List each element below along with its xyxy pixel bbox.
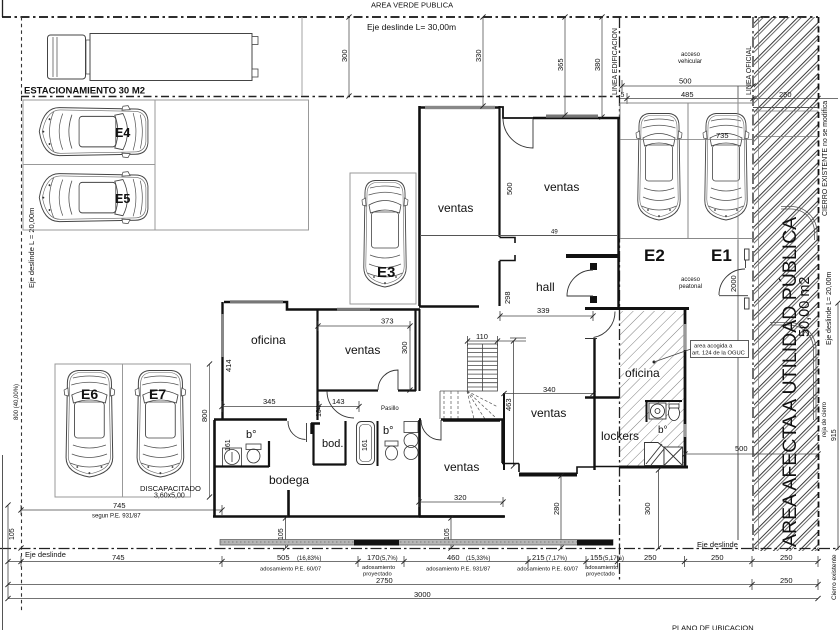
svg-text:735: 735 — [716, 131, 729, 140]
svg-text:105: 105 — [9, 528, 16, 540]
svg-text:3,60x5,00: 3,60x5,00 — [154, 493, 185, 500]
svg-text:(15,33%): (15,33%) — [466, 556, 490, 562]
svg-text:215: 215 — [532, 553, 545, 562]
svg-text:460: 460 — [447, 553, 460, 562]
svg-text:800: 800 — [200, 409, 209, 422]
svg-text:2000: 2000 — [729, 275, 738, 292]
svg-text:(16,83%): (16,83%) — [297, 556, 321, 562]
svg-text:250: 250 — [780, 553, 793, 562]
svg-text:oficina: oficina — [251, 333, 286, 347]
svg-text:E1: E1 — [711, 246, 732, 265]
svg-text:3000: 3000 — [414, 590, 431, 599]
svg-text:oficina: oficina — [625, 366, 660, 380]
svg-text:250: 250 — [644, 553, 657, 562]
svg-text:Eje deslinde: Eje deslinde — [25, 550, 66, 559]
svg-text:745: 745 — [113, 501, 126, 510]
svg-text:ventas: ventas — [544, 180, 579, 194]
svg-text:300: 300 — [400, 341, 409, 354]
svg-text:339: 339 — [537, 306, 550, 315]
svg-text:155: 155 — [590, 553, 603, 562]
svg-text:ventas: ventas — [438, 201, 473, 215]
svg-text:E6: E6 — [81, 386, 98, 402]
svg-text:5: 5 — [621, 92, 625, 99]
svg-text:50,00 m2: 50,00 m2 — [797, 277, 813, 337]
svg-text:298: 298 — [503, 291, 512, 304]
svg-text:110: 110 — [476, 332, 488, 341]
svg-text:Eje deslinde L= 20,00m: Eje deslinde L= 20,00m — [826, 271, 833, 345]
svg-text:ventas: ventas — [444, 460, 479, 474]
svg-text:ventas: ventas — [531, 406, 566, 420]
svg-text:bodega: bodega — [269, 473, 309, 487]
svg-text:365: 365 — [556, 58, 565, 71]
svg-text:b°: b° — [246, 429, 257, 441]
svg-text:b°: b° — [658, 425, 668, 436]
svg-text:AREA VERDE PUBLICA: AREA VERDE PUBLICA — [371, 1, 453, 10]
svg-text:Eje deslinde L= 30,00m: Eje deslinde L= 30,00m — [367, 22, 456, 32]
svg-text:(5,17%): (5,17%) — [603, 556, 624, 562]
svg-text:E4: E4 — [115, 126, 130, 140]
svg-text:330: 330 — [474, 49, 483, 62]
svg-text:Pasillo: Pasillo — [381, 406, 399, 412]
svg-text:bod.: bod. — [322, 438, 343, 450]
svg-text:E7: E7 — [149, 386, 166, 402]
svg-text:373: 373 — [381, 317, 394, 326]
svg-text:adosamiento P.E. 60/07: adosamiento P.E. 60/07 — [260, 567, 321, 573]
svg-text:b°: b° — [383, 425, 394, 437]
svg-text:E2: E2 — [644, 246, 665, 265]
svg-text:Eje deslinde L = 20,00m: Eje deslinde L = 20,00m — [27, 208, 36, 288]
svg-text:300: 300 — [643, 502, 652, 515]
svg-text:hall: hall — [536, 280, 555, 294]
svg-text:vehicular: vehicular — [678, 59, 702, 65]
svg-text:acceso: acceso — [681, 277, 701, 283]
svg-text:745: 745 — [112, 553, 125, 562]
svg-text:485: 485 — [681, 90, 694, 99]
svg-text:143: 143 — [332, 397, 345, 406]
svg-text:ESTACIONAMIENTO 30 M2: ESTACIONAMIENTO 30 M2 — [24, 86, 145, 97]
svg-text:2750: 2750 — [376, 576, 393, 585]
svg-text:463: 463 — [504, 398, 513, 411]
svg-text:500: 500 — [679, 77, 692, 86]
svg-text:345: 345 — [263, 397, 276, 406]
svg-text:340: 340 — [543, 385, 556, 394]
svg-text:500: 500 — [505, 182, 514, 195]
svg-text:280: 280 — [552, 502, 561, 515]
svg-text:104: 104 — [316, 405, 323, 417]
svg-text:250: 250 — [711, 553, 724, 562]
svg-text:915: 915 — [831, 429, 838, 441]
svg-text:105: 105 — [278, 528, 285, 540]
svg-text:adosamiento P.E. 931/87: adosamiento P.E. 931/87 — [426, 567, 490, 573]
svg-text:art. 124 de la OGUC: art. 124 de la OGUC — [692, 351, 745, 357]
svg-text:adosamiento P.E. 60/07: adosamiento P.E. 60/07 — [517, 567, 578, 573]
svg-text:PLANO DE UBICACION: PLANO DE UBICACION — [672, 624, 754, 630]
svg-text:reja de cierro: reja de cierro — [822, 401, 828, 437]
svg-text:300: 300 — [340, 49, 349, 62]
svg-text:peatonal: peatonal — [679, 284, 702, 290]
svg-text:(5,7%): (5,7%) — [380, 556, 398, 562]
svg-text:105: 105 — [444, 528, 451, 540]
svg-text:area acogida a: area acogida a — [694, 344, 733, 350]
svg-text:E3: E3 — [377, 264, 395, 281]
svg-text:Cierro existente: Cierro existente — [831, 554, 838, 600]
svg-text:414: 414 — [224, 359, 233, 372]
svg-text:CIERRO EXISTENTE no se modific: CIERRO EXISTENTE no se modifica — [822, 101, 829, 216]
svg-text:acceso: acceso — [681, 52, 701, 58]
svg-text:505: 505 — [277, 553, 290, 562]
svg-text:800 (40,00%): 800 (40,00%) — [14, 384, 20, 420]
svg-text:E5: E5 — [115, 192, 130, 206]
svg-text:500: 500 — [735, 444, 748, 453]
svg-text:380: 380 — [593, 58, 602, 71]
svg-text:49: 49 — [551, 230, 558, 236]
svg-text:adosamiento: adosamiento — [585, 565, 618, 571]
svg-text:170: 170 — [367, 553, 380, 562]
svg-text:(7,17%): (7,17%) — [546, 556, 567, 562]
svg-text:proyectado: proyectado — [586, 572, 615, 578]
svg-text:161: 161 — [362, 439, 369, 451]
svg-text:161: 161 — [225, 439, 232, 451]
svg-text:Eje deslinde: Eje deslinde — [697, 540, 738, 549]
svg-text:segun P.E. 931/87: segun P.E. 931/87 — [92, 514, 141, 520]
svg-text:250: 250 — [780, 576, 793, 585]
svg-text:ventas: ventas — [345, 343, 380, 357]
svg-text:AREA AFECTA A UTILIDAD PÚBLICA: AREA AFECTA A UTILIDAD PÚBLICA — [778, 217, 801, 547]
svg-text:320: 320 — [454, 493, 467, 502]
svg-text:LINEA EDIFICACION: LINEA EDIFICACION — [612, 28, 619, 95]
svg-text:adosamiento: adosamiento — [362, 565, 395, 571]
